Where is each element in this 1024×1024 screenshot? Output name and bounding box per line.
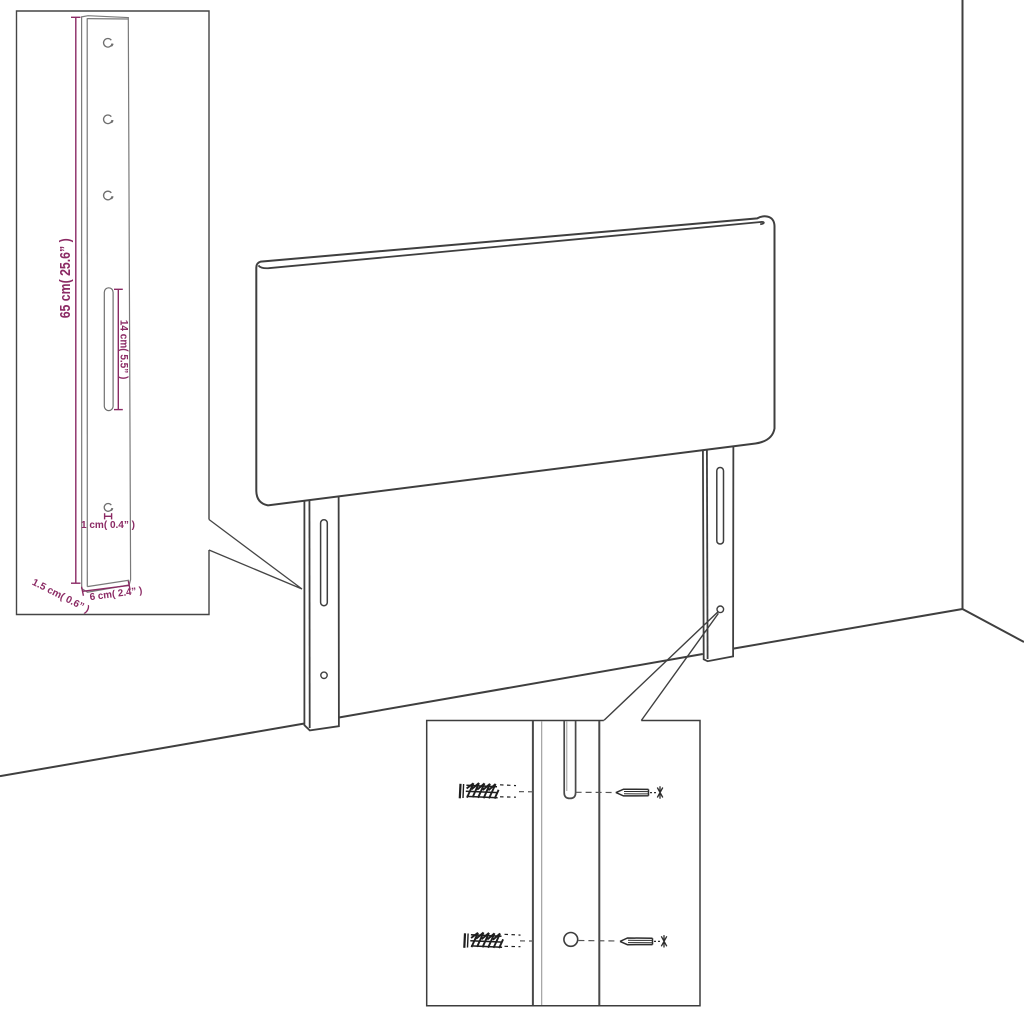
svg-text:65 cm( 25.6” ): 65 cm( 25.6” ) (57, 238, 74, 318)
svg-text:14 cm( 5.5” ): 14 cm( 5.5” ) (118, 320, 130, 380)
svg-text:1 cm( 0.4” ): 1 cm( 0.4” ) (81, 519, 135, 531)
